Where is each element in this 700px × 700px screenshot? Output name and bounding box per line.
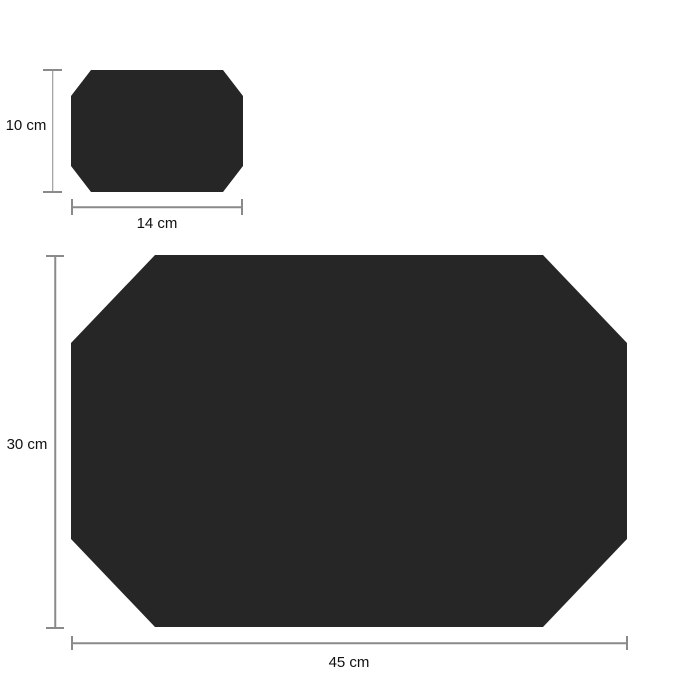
large-placemat-width-label: 45 cm bbox=[299, 654, 399, 671]
dimension-end-cap bbox=[43, 191, 62, 193]
dimension-end-cap bbox=[626, 636, 628, 650]
dimension-end-cap bbox=[46, 627, 64, 629]
small-placemat-octagon bbox=[71, 70, 243, 192]
dimension-end-cap bbox=[241, 199, 243, 215]
dimension-line bbox=[71, 642, 628, 644]
large-placemat-octagon bbox=[71, 255, 627, 627]
placemat-size-diagram: 10 cm 14 cm 30 cm 45 cm bbox=[0, 0, 700, 700]
dimension-line bbox=[71, 206, 243, 208]
small-placemat-width-label: 14 cm bbox=[107, 215, 207, 232]
small-placemat-height-label: 10 cm bbox=[0, 117, 52, 134]
dimension-line bbox=[54, 255, 56, 629]
large-placemat-height-label: 30 cm bbox=[0, 436, 54, 453]
small-placemat-width-dimension bbox=[71, 199, 243, 215]
large-placemat-width-dimension bbox=[71, 636, 628, 650]
